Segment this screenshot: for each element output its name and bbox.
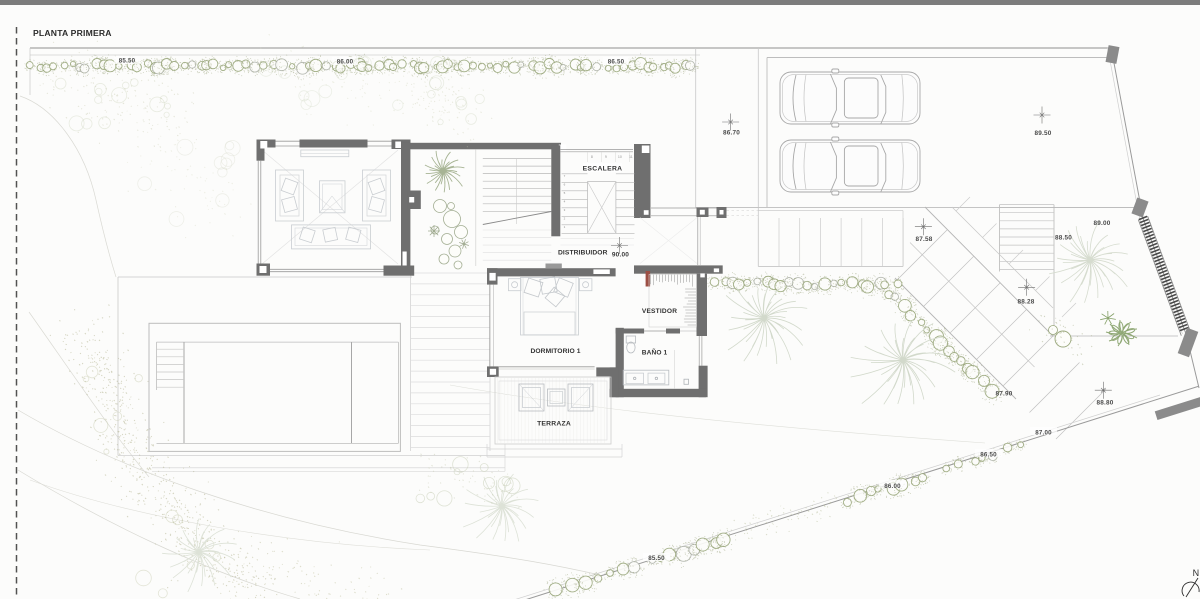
svg-text:86.00: 86.00 [337,59,354,66]
svg-text:N: N [1193,568,1200,578]
svg-text:89.00: 89.00 [1094,220,1111,227]
svg-text:PLANTA PRIMERA: PLANTA PRIMERA [33,28,112,38]
svg-text:ESCALERA: ESCALERA [583,166,623,173]
svg-text:DISTRIBUIDOR: DISTRIBUIDOR [558,250,608,257]
svg-text:8: 8 [591,155,593,159]
svg-text:BAÑO 1: BAÑO 1 [642,348,668,357]
svg-text:88.28: 88.28 [1018,299,1035,306]
svg-text:VESTIDOR: VESTIDOR [642,308,677,315]
svg-text:2: 2 [564,217,566,221]
svg-text:90.00: 90.00 [612,252,629,259]
svg-text:88.80: 88.80 [1097,400,1114,407]
svg-text:4: 4 [564,200,566,204]
svg-text:9: 9 [605,155,607,159]
svg-text:87.58: 87.58 [916,236,933,243]
svg-text:7: 7 [564,174,566,178]
svg-text:5: 5 [564,191,566,195]
svg-text:11: 11 [629,155,633,159]
svg-text:86.70: 86.70 [723,130,740,137]
svg-text:86.00: 86.00 [884,483,901,490]
svg-text:86.50: 86.50 [980,452,997,459]
svg-text:TERRAZA: TERRAZA [537,421,571,428]
svg-text:1: 1 [564,225,566,229]
svg-text:6: 6 [564,183,566,187]
svg-text:10: 10 [618,155,622,159]
svg-text:86.50: 86.50 [608,59,625,66]
svg-text:89.50: 89.50 [1035,130,1052,137]
svg-text:85.50: 85.50 [119,58,136,65]
svg-text:88.50: 88.50 [1055,235,1072,242]
svg-text:DORMITORIO 1: DORMITORIO 1 [530,348,580,355]
svg-text:87.90: 87.90 [996,391,1013,398]
svg-text:87.00: 87.00 [1035,430,1052,437]
svg-text:3: 3 [564,208,566,212]
svg-text:85.50: 85.50 [648,555,665,562]
